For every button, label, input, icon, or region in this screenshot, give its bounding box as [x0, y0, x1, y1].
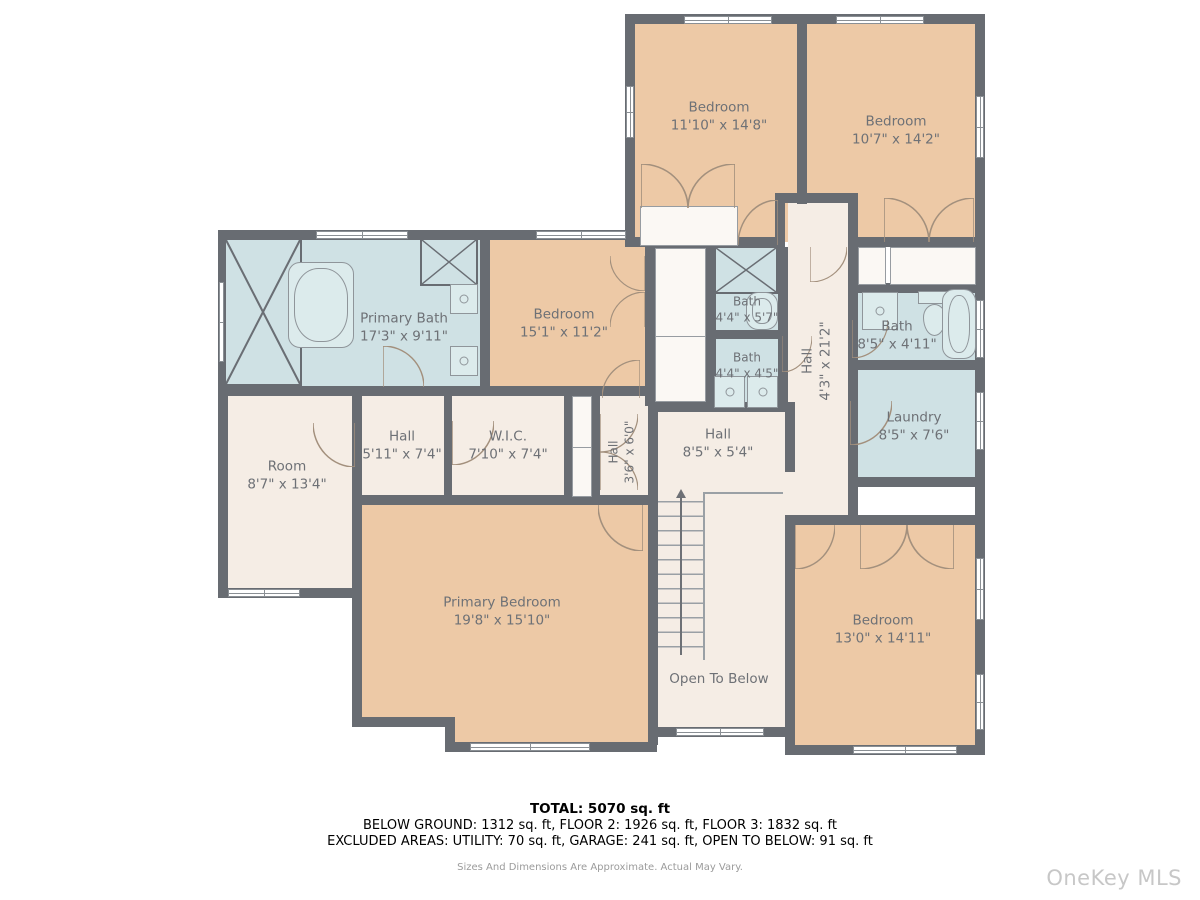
footer-excluded-areas: EXCLUDED AREAS: UTILITY: 70 sq. ft, GARA… [0, 834, 1200, 849]
wall [848, 477, 985, 487]
door-arc [795, 525, 835, 569]
railing [703, 492, 783, 660]
door-arc [688, 164, 735, 208]
closet-divider [656, 336, 705, 337]
room-primary-bedroom-ext [455, 719, 648, 744]
door-arc [738, 200, 778, 245]
window [536, 231, 626, 239]
window [976, 674, 984, 730]
window [626, 86, 634, 138]
wall [785, 515, 985, 525]
wall [218, 386, 662, 396]
bathtub-icon [942, 289, 976, 359]
window [976, 96, 984, 158]
wall [592, 396, 600, 504]
wall [848, 360, 985, 370]
door-arc [810, 247, 847, 282]
door-arc [610, 256, 645, 291]
label-bath-right: Bath8'5" x 4'11" [857, 318, 936, 353]
wall [775, 193, 855, 203]
wall [785, 402, 795, 472]
footer-floor-areas: BELOW GROUND: 1312 sq. ft, FLOOR 2: 1926… [0, 818, 1200, 833]
closet-hall-strip [655, 248, 706, 402]
door-arc [383, 346, 424, 387]
window [976, 392, 984, 450]
wall [564, 392, 572, 504]
label-hall-small: Hall5'11" x 7'4" [362, 428, 441, 463]
footer-disclaimer: Sizes And Dimensions Are Approximate. Ac… [0, 862, 1200, 873]
door-arc [929, 198, 974, 242]
sink-icon [450, 346, 478, 376]
closet-bedroom-top-right [890, 247, 976, 285]
wall [706, 330, 780, 339]
door-arc [602, 360, 640, 398]
label-bath-upper: Bath4'4" x 5'7" [716, 294, 779, 325]
door-arc [860, 525, 907, 569]
label-bedroom-top-left: Bedroom11'10" x 14'8" [671, 99, 768, 134]
label-wic: W.I.C.7'10" x 7'4" [468, 428, 547, 463]
door-arc [907, 525, 954, 569]
closet-divider [572, 447, 592, 448]
shower-icon [420, 238, 478, 286]
shower-icon [714, 246, 778, 294]
footer-total-sqft: TOTAL: 5070 sq. ft [0, 801, 1200, 817]
sink-icon [450, 284, 478, 314]
stairs-arrow [680, 497, 682, 655]
wall [785, 515, 795, 755]
wall [352, 717, 455, 727]
floor-plan-page: { "plan": { "rooms": { "bedroom_top_left… [0, 0, 1200, 900]
window [676, 728, 764, 736]
door-arc [598, 505, 643, 551]
label-primary-bath: Primary Bath17'3" x 9'11" [360, 310, 448, 345]
onekey-mls-watermark: OneKey MLS [1046, 866, 1182, 890]
wall [444, 392, 452, 504]
door-arc [884, 198, 929, 242]
window [228, 589, 300, 597]
window [836, 16, 924, 24]
label-hall-tiny: Hall3'6" x 6'0" [606, 421, 637, 484]
label-hall-vertical: Hall4'3" x 21'2" [799, 321, 834, 400]
hall-connector [785, 470, 795, 515]
wall [352, 495, 652, 505]
door-arc [610, 292, 645, 327]
window [316, 231, 408, 239]
closet-bedroom-top-right [858, 247, 886, 285]
bathtub-icon [288, 262, 354, 348]
label-open-to-below: Open To Below [669, 671, 768, 689]
window [470, 743, 590, 751]
wall [778, 247, 788, 412]
label-bedroom-top-right: Bedroom10'7" x 14'2" [852, 113, 940, 148]
window [976, 300, 984, 358]
label-primary-bedroom: Primary Bedroom19'8" x 15'10" [443, 594, 561, 629]
label-bedroom-bottom: Bedroom13'0" x 14'11" [835, 612, 932, 647]
stairs-arrow-head [676, 489, 686, 498]
window [853, 746, 957, 754]
wall [480, 230, 490, 396]
label-room-left: Room8'7" x 13'4" [247, 458, 326, 493]
wall [645, 230, 655, 406]
window [976, 558, 984, 620]
closet-bedroom-top-left [640, 206, 738, 246]
wall [797, 14, 807, 204]
wall [648, 396, 658, 488]
door-arc [641, 164, 688, 208]
wall [648, 480, 658, 745]
label-bath-lower: Bath4'4" x 4'5" [716, 350, 779, 381]
label-bedroom-middle: Bedroom15'1" x 11'2" [520, 306, 608, 341]
label-hall-center: Hall8'5" x 5'4" [683, 426, 754, 461]
window [684, 16, 772, 24]
label-laundry: Laundry8'5" x 7'6" [879, 409, 950, 444]
